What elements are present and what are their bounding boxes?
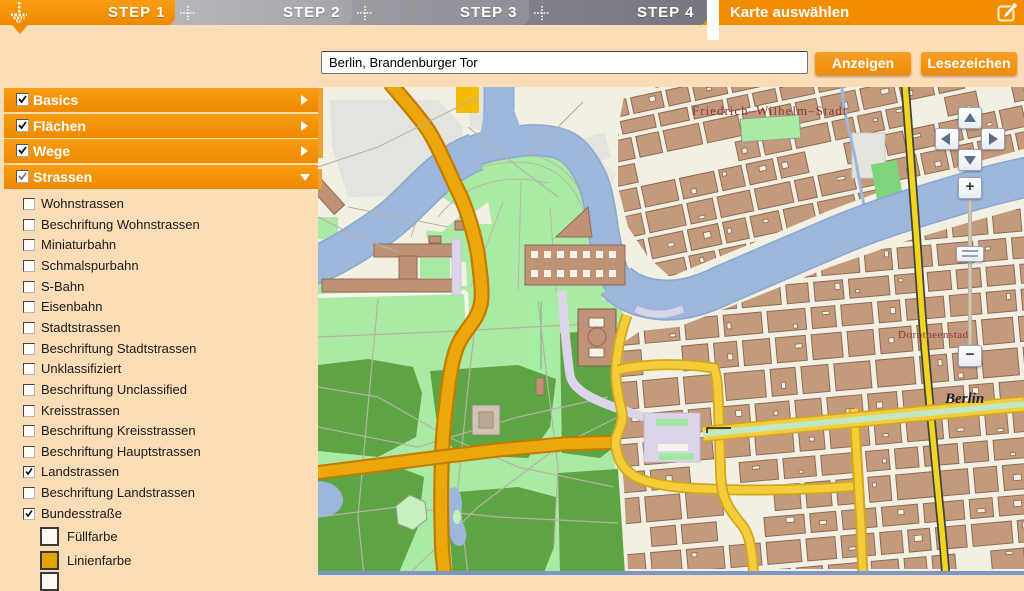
- svg-text:Berlin: Berlin: [944, 391, 984, 407]
- svg-text:Friedrich–Wilhelm–Stadt: Friedrich–Wilhelm–Stadt: [692, 103, 847, 118]
- svg-text:Dorotheenstadt: Dorotheenstadt: [898, 329, 972, 341]
